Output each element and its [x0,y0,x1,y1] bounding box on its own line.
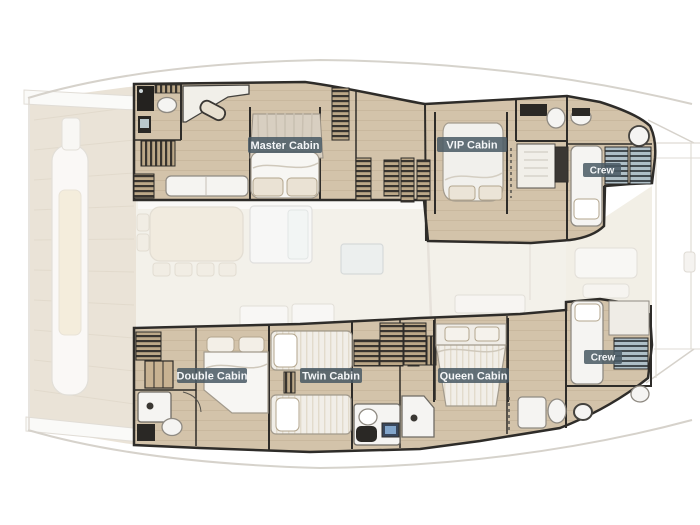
svg-text:VIP Cabin: VIP Cabin [446,140,497,152]
svg-text:Crew: Crew [591,353,616,364]
svg-text:Crew: Crew [590,166,615,177]
svg-text:Master Cabin: Master Cabin [250,140,319,152]
svg-text:Twin Cabin: Twin Cabin [302,371,360,383]
svg-text:Double Cabin: Double Cabin [177,371,248,383]
svg-text:Queen Cabin: Queen Cabin [440,371,508,383]
